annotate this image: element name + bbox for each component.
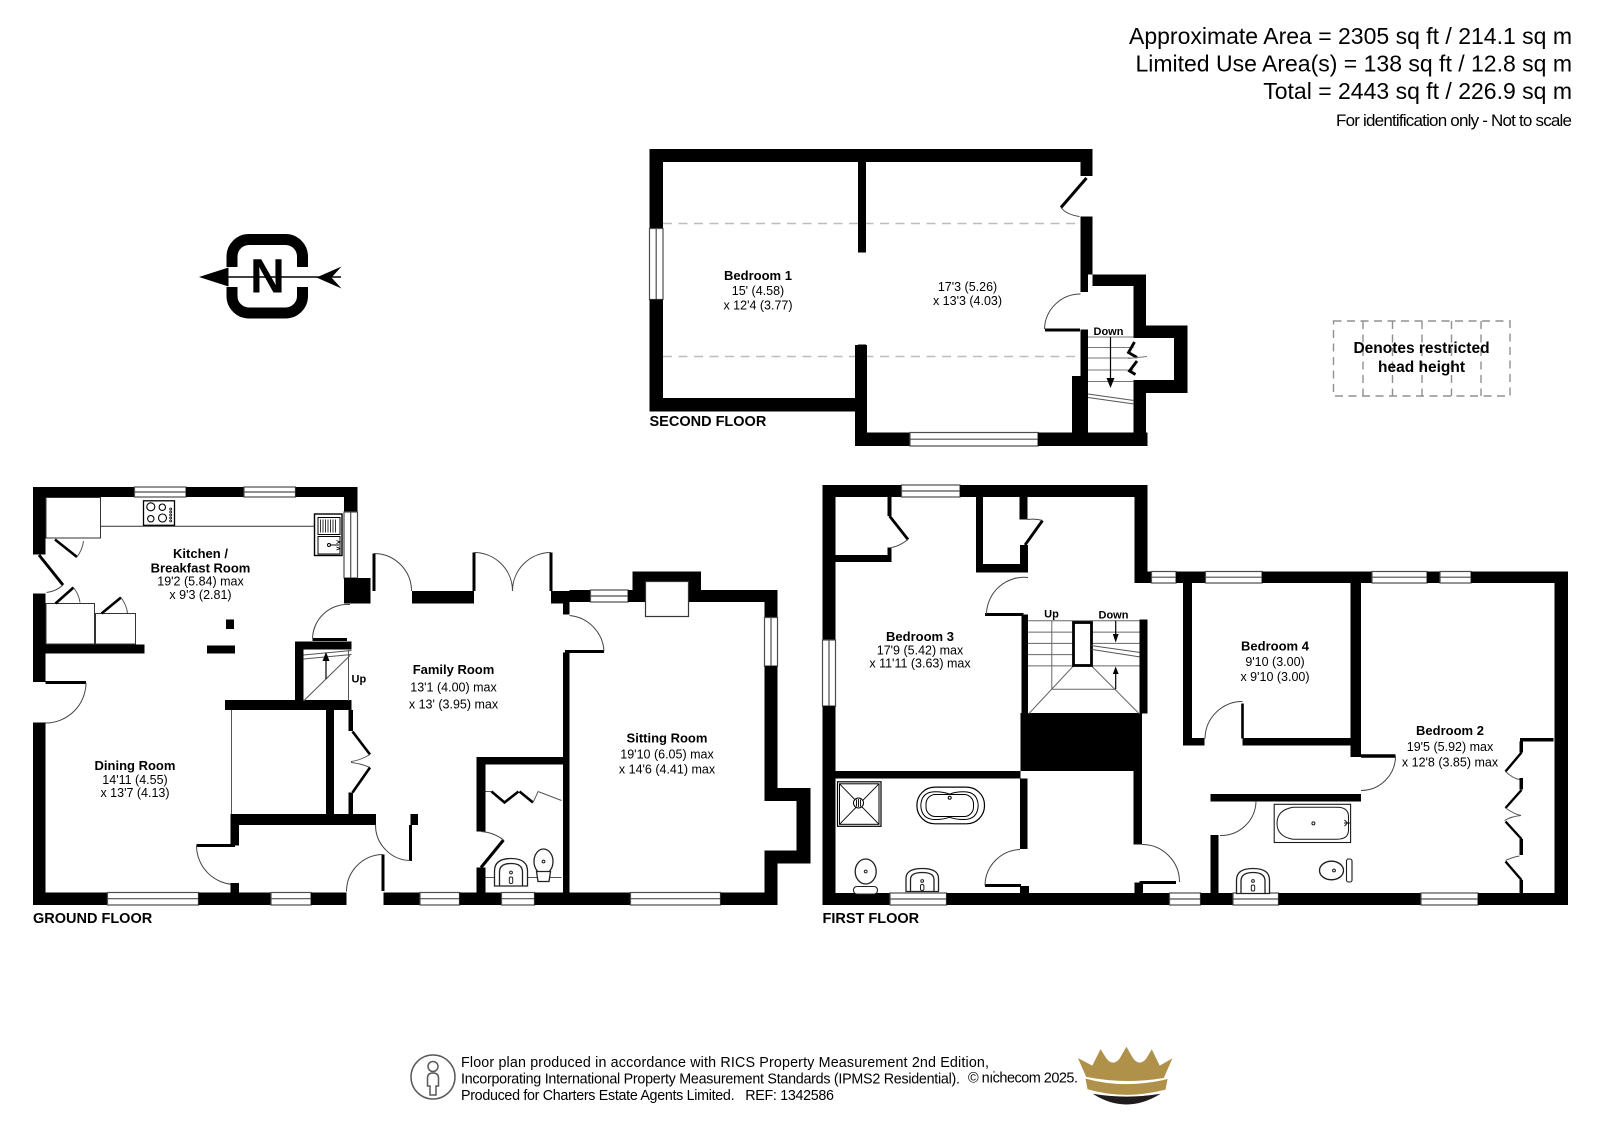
svg-text:FIRST FLOOR: FIRST FLOOR [823,911,920,927]
svg-text:Kitchen /: Kitchen / [173,546,228,561]
svg-text:Down: Down [1094,326,1124,338]
svg-text:x 13'7 (4.13): x 13'7 (4.13) [100,786,169,800]
svg-text:head height: head height [1378,359,1465,376]
svg-text:17'3 (5.26): 17'3 (5.26) [938,280,997,294]
svg-text:17'9 (5.42) max: 17'9 (5.42) max [877,644,964,658]
svg-text:Family Room: Family Room [413,662,495,677]
svg-text:Bedroom 2: Bedroom 2 [1416,723,1484,738]
svg-text:Up: Up [1044,609,1059,621]
svg-text:© nıchecom 2025.: © nıchecom 2025. [968,1071,1078,1087]
svg-text:N: N [250,251,285,304]
svg-text:x 11'11 (3.63) max: x 11'11 (3.63) max [869,657,971,671]
svg-text:19'5 (5.92) max: 19'5 (5.92) max [1407,740,1494,754]
svg-text:SECOND FLOOR: SECOND FLOOR [650,414,767,430]
svg-text:19'2 (5.84) max: 19'2 (5.84) max [157,575,244,589]
svg-text:Dining Room: Dining Room [95,758,176,773]
svg-text:Floor plan produced in accorda: Floor plan produced in accordance with R… [461,1055,989,1071]
svg-text:14'11 (4.55): 14'11 (4.55) [102,773,167,787]
svg-text:x 12'8 (3.85) max: x 12'8 (3.85) max [1402,756,1499,770]
svg-text:Denotes restricted: Denotes restricted [1353,340,1489,357]
svg-text:x 12'4 (3.77): x 12'4 (3.77) [723,299,792,313]
svg-text:Bedroom 1: Bedroom 1 [724,268,792,283]
svg-text:Down: Down [1099,610,1129,622]
svg-text:Incorporating International Pr: Incorporating International Property Mea… [461,1072,960,1088]
svg-text:Breakfast Room: Breakfast Room [151,561,251,576]
svg-text:15' (4.58): 15' (4.58) [732,284,784,298]
svg-text:Bedroom 4: Bedroom 4 [1241,639,1310,654]
svg-text:Limited Use Area(s) = 138 sq f: Limited Use Area(s) = 138 sq ft / 12.8 s… [1135,51,1572,77]
svg-text:Approximate Area = 2305 sq ft: Approximate Area = 2305 sq ft / 214.1 sq… [1129,23,1572,49]
svg-text:9'10 (3.00): 9'10 (3.00) [1245,655,1304,669]
svg-text:Total = 2443 sq ft / 226.9 sq: Total = 2443 sq ft / 226.9 sq m [1263,78,1572,104]
svg-text:Up: Up [352,674,367,686]
svg-text:13'1 (4.00) max: 13'1 (4.00) max [410,681,497,695]
svg-text:x 9'3 (2.81): x 9'3 (2.81) [169,588,231,602]
svg-text:19'10 (6.05) max: 19'10 (6.05) max [620,748,714,762]
svg-text:Produced for Charters Estate A: Produced for Charters Estate Agents Limi… [461,1088,834,1104]
svg-text:Sitting Room: Sitting Room [627,731,708,746]
svg-text:x 13' (3.95) max: x 13' (3.95) max [409,698,499,712]
svg-text:x 13'3 (4.03): x 13'3 (4.03) [933,294,1002,308]
svg-text:Bedroom 3: Bedroom 3 [886,629,954,644]
svg-text:x 14'6 (4.41) max: x 14'6 (4.41) max [619,763,716,777]
svg-text:GROUND FLOOR: GROUND FLOOR [33,911,153,927]
svg-text:For identification only - Not: For identification only - Not to scale [1336,111,1572,130]
svg-text:x 9'10 (3.00): x 9'10 (3.00) [1240,670,1309,684]
